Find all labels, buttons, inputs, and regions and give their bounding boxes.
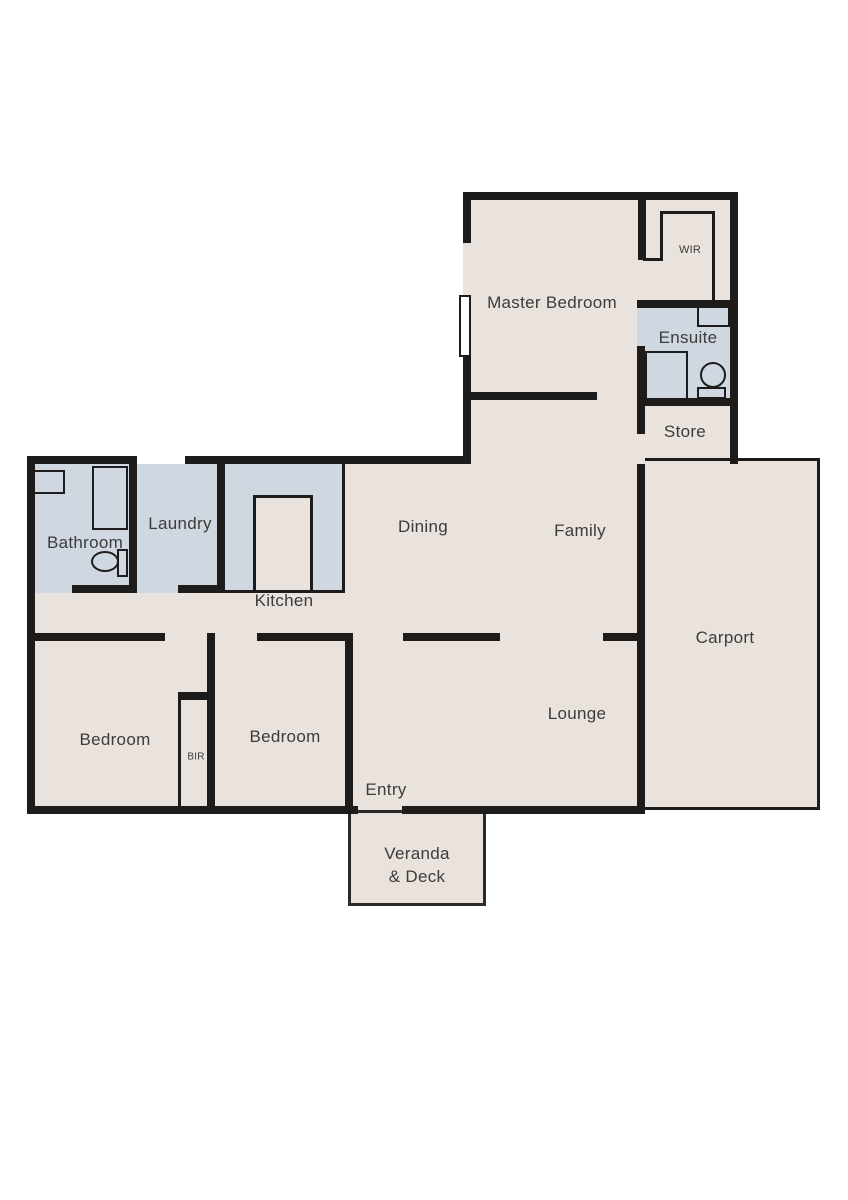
room-label-veranda-deck: Veranda & Deck bbox=[384, 842, 449, 888]
room-label-kitchen: Kitchen bbox=[255, 591, 314, 611]
wall bbox=[207, 633, 215, 806]
room-label-bathroom: Bathroom bbox=[47, 533, 123, 553]
floor-plan: Master Bedroom WIR Ensuite Store Bathroo… bbox=[0, 0, 848, 1200]
wall bbox=[217, 456, 225, 593]
room-label-master-bedroom: Master Bedroom bbox=[487, 293, 617, 313]
room-label-wir: WIR bbox=[679, 244, 701, 256]
wall bbox=[637, 406, 645, 434]
wir-robe-outline bbox=[712, 211, 715, 303]
wall bbox=[27, 456, 35, 814]
toilet-cistern-icon bbox=[117, 549, 128, 577]
wall bbox=[463, 392, 597, 400]
wall bbox=[185, 456, 471, 464]
wall bbox=[72, 585, 137, 593]
veranda-label-line1: Veranda bbox=[384, 842, 449, 865]
wall bbox=[27, 806, 358, 814]
wir-robe-outline bbox=[643, 258, 663, 261]
bathtub-icon bbox=[92, 466, 128, 530]
toilet-cistern-icon bbox=[697, 387, 726, 399]
veranda-label-line2: & Deck bbox=[384, 865, 449, 888]
wall bbox=[463, 200, 471, 243]
wall bbox=[463, 357, 471, 464]
wall bbox=[129, 464, 137, 585]
room-label-lounge: Lounge bbox=[548, 704, 607, 724]
window-icon bbox=[459, 295, 471, 357]
toilet-icon bbox=[91, 551, 119, 572]
wall bbox=[603, 633, 645, 641]
kitchen-bench-void bbox=[253, 495, 313, 593]
room-label-family: Family bbox=[554, 521, 606, 541]
kitchen-bench-edge bbox=[342, 464, 345, 593]
wall bbox=[402, 806, 645, 814]
wir-robe-outline bbox=[660, 211, 715, 214]
wall bbox=[403, 633, 500, 641]
wall bbox=[35, 633, 165, 641]
carport-outline-bottom bbox=[645, 807, 820, 810]
room-label-ensuite: Ensuite bbox=[659, 328, 718, 348]
vanity-icon bbox=[33, 470, 65, 494]
room-label-bedroom-right: Bedroom bbox=[249, 727, 320, 747]
wall bbox=[257, 633, 347, 641]
wall bbox=[345, 633, 353, 806]
wall bbox=[638, 200, 646, 260]
wall bbox=[178, 692, 215, 700]
carport-outline-right bbox=[817, 458, 820, 810]
bir-robe-front-line bbox=[178, 700, 181, 806]
room-label-entry: Entry bbox=[365, 780, 406, 800]
room-label-laundry: Laundry bbox=[148, 514, 212, 534]
wall bbox=[27, 456, 137, 464]
wall bbox=[463, 192, 738, 200]
carport-outline-top bbox=[645, 458, 820, 461]
room-label-bedroom-left: Bedroom bbox=[79, 730, 150, 750]
room-label-bir: BIR bbox=[187, 752, 204, 763]
toilet-icon bbox=[700, 362, 726, 388]
room-label-carport: Carport bbox=[696, 628, 755, 648]
basin-icon bbox=[697, 306, 730, 327]
room-label-dining: Dining bbox=[398, 517, 448, 537]
wall bbox=[730, 200, 738, 464]
shower-icon bbox=[645, 351, 688, 400]
wir-robe-outline bbox=[660, 211, 663, 261]
room-label-store: Store bbox=[664, 422, 706, 442]
